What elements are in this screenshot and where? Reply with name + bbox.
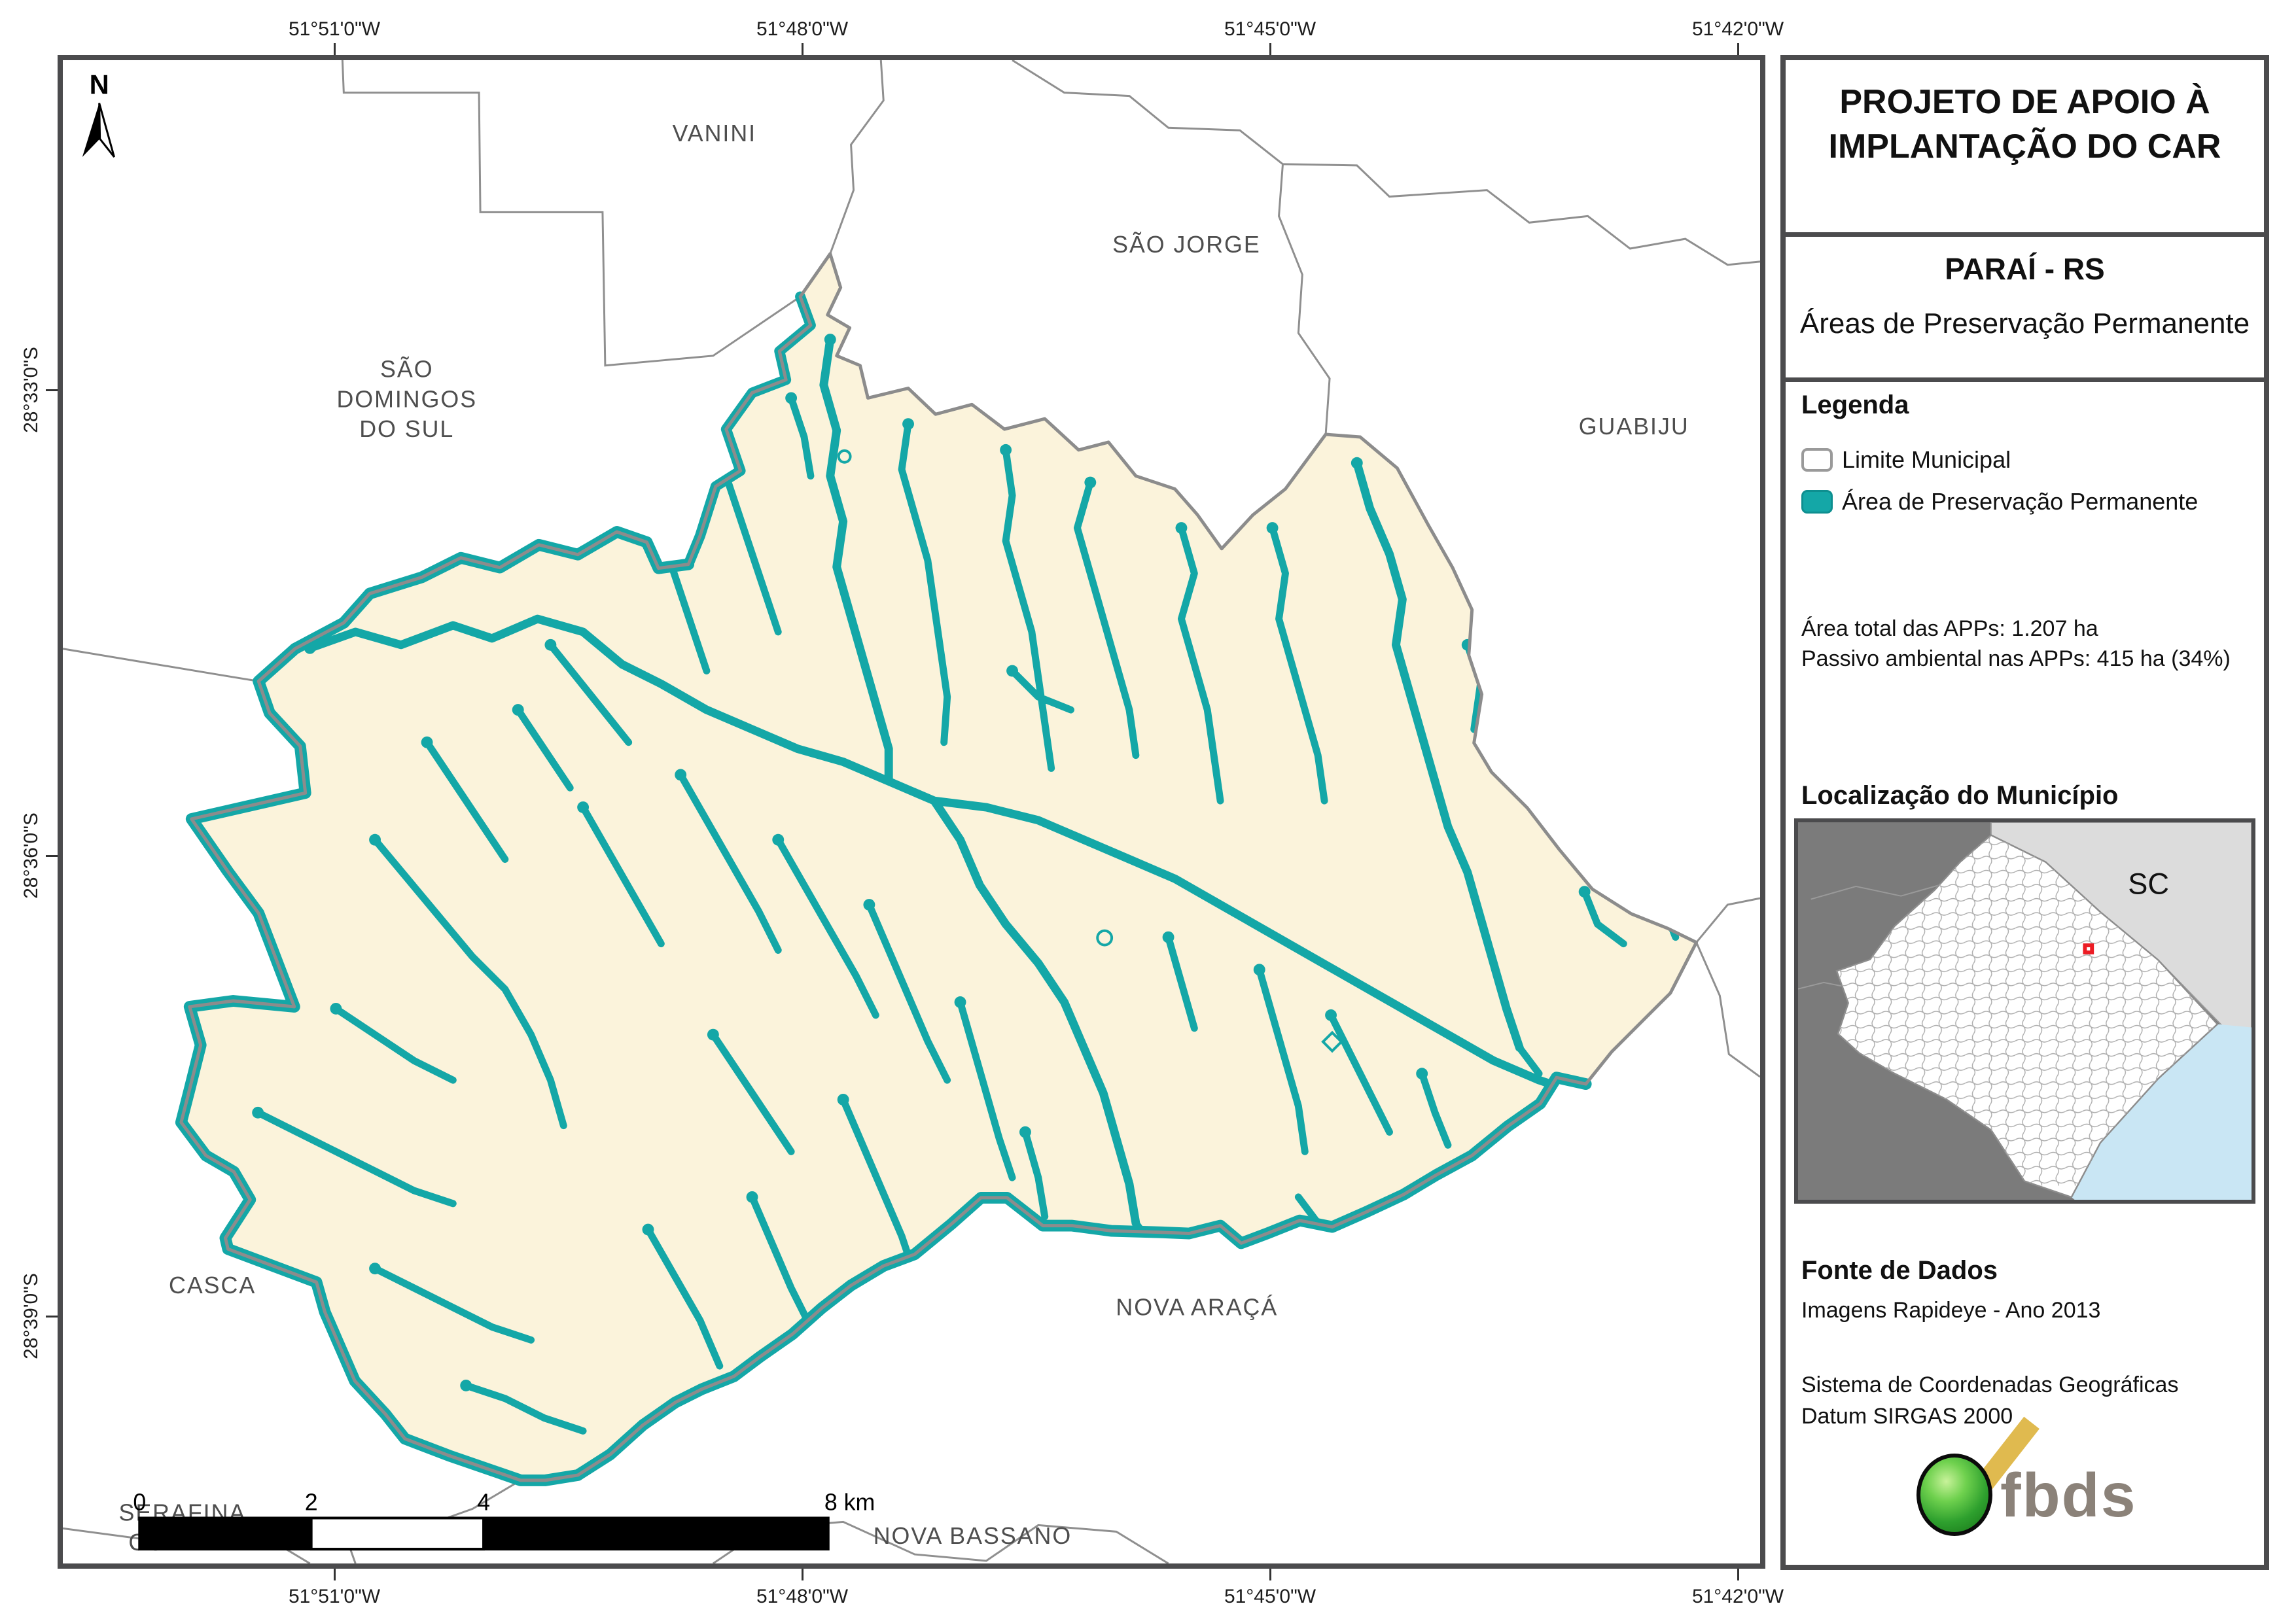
legend-swatch-limite-municipal	[1801, 448, 1833, 472]
map-label-sao-jorge: SÃO JORGE	[1112, 232, 1261, 258]
location-heading: Localização do Município	[1801, 781, 2119, 811]
product-title: Áreas de Preservação Permanente	[1786, 307, 2264, 340]
panel-divider-2	[1784, 377, 2265, 382]
map-svg: VANINI SÃO JORGE GUABIJU SÃO DOMINGOS DO…	[63, 60, 1760, 1563]
inset-sc-label: SC	[2128, 867, 2169, 901]
grat-label: 51°42'0"W	[1692, 1586, 1784, 1608]
map-label-sao-domingos-1: SÃO	[380, 357, 434, 383]
grat-label: 51°48'0"W	[756, 1586, 848, 1608]
inset-svg: SC	[1798, 822, 2252, 1200]
scale-label-0: 0	[133, 1490, 146, 1516]
tick-left-2	[46, 855, 58, 857]
map-canvas: VANINI SÃO JORGE GUABIJU SÃO DOMINGOS DO…	[58, 55, 1765, 1569]
fbds-logo: fbds	[1916, 1395, 2191, 1558]
grat-label: 28°33'0"S	[20, 347, 43, 433]
app-ring-hole	[1097, 931, 1112, 945]
grat-label: 51°51'0"W	[289, 1586, 380, 1608]
app-total-stat: Área total das APPs: 1.207 ha	[1801, 614, 2098, 644]
tick-top-4	[1737, 43, 1739, 55]
north-arrow: N	[82, 69, 115, 157]
tick-bottom-1	[334, 1569, 336, 1580]
grat-label: 28°36'0"S	[20, 812, 43, 899]
map-label-vanini: VANINI	[673, 120, 757, 147]
panel-divider-1	[1784, 232, 2265, 237]
app-passivo-stat: Passivo ambiental nas APPs: 415 ha (34%)	[1801, 644, 2231, 674]
project-title-line1: PROJETO DE APOIO À	[1786, 80, 2264, 124]
map-label-nova-araca: NOVA ARAÇÁ	[1116, 1295, 1278, 1321]
legend-swatch-app	[1801, 490, 1833, 514]
map-label-sao-domingos-2: DOMINGOS	[336, 386, 477, 412]
map-label-nova-bassano: NOVA BASSANO	[874, 1523, 1072, 1549]
map-label-sao-domingos-3: DO SUL	[359, 416, 454, 442]
tick-bottom-3	[1269, 1569, 1271, 1580]
scale-label-8km: 8 km	[824, 1490, 875, 1516]
tick-top-2	[802, 43, 804, 55]
grat-label: 51°45'0"W	[1224, 18, 1316, 41]
app-ring-hole-2	[839, 451, 851, 462]
grat-label: 28°39'0"S	[20, 1273, 43, 1359]
project-title: PROJETO DE APOIO À IMPLANTAÇÃO DO CAR	[1786, 80, 2264, 169]
tick-top-1	[334, 43, 336, 55]
tick-top-3	[1269, 43, 1271, 55]
north-arrow-label: N	[90, 69, 109, 100]
tick-left-3	[46, 1316, 58, 1318]
grat-label: 51°48'0"W	[756, 18, 848, 41]
data-source-heading: Fonte de Dados	[1801, 1256, 1998, 1285]
map-label-guabiju: GUABIJU	[1579, 413, 1689, 440]
data-source-line1: Imagens Rapideye - Ano 2013	[1801, 1298, 2100, 1323]
scale-bar: 0 2 4 8 km	[133, 1490, 875, 1550]
inset-marker-dot	[2087, 947, 2090, 951]
map-label-casca: CASCA	[169, 1272, 256, 1299]
municipality-title: PARAÍ - RS	[1786, 251, 2264, 287]
grat-label: 51°45'0"W	[1224, 1586, 1316, 1608]
legend-label-app: Área de Preservação Permanente	[1842, 488, 2198, 515]
tick-left-1	[46, 389, 58, 391]
legend-item-limite: Limite Municipal	[1801, 445, 2011, 475]
scale-label-2: 2	[305, 1490, 318, 1516]
legend-item-app: Área de Preservação Permanente	[1801, 487, 2198, 517]
fbds-logo-globe-icon	[1916, 1454, 1992, 1536]
tick-bottom-2	[802, 1569, 804, 1580]
info-panel: PROJETO DE APOIO À IMPLANTAÇÃO DO CAR PA…	[1780, 55, 2269, 1570]
legend-heading: Legenda	[1801, 391, 1909, 420]
fbds-logo-text: fbds	[2000, 1460, 2137, 1531]
tick-bottom-4	[1737, 1569, 1739, 1580]
scale-label-4: 4	[477, 1490, 490, 1516]
grat-label: 51°42'0"W	[1692, 18, 1784, 41]
project-title-line2: IMPLANTAÇÃO DO CAR	[1786, 124, 2264, 169]
legend-label-limite: Limite Municipal	[1842, 446, 2011, 474]
location-inset-map: SC	[1794, 818, 2255, 1204]
grat-label: 51°51'0"W	[289, 18, 380, 41]
